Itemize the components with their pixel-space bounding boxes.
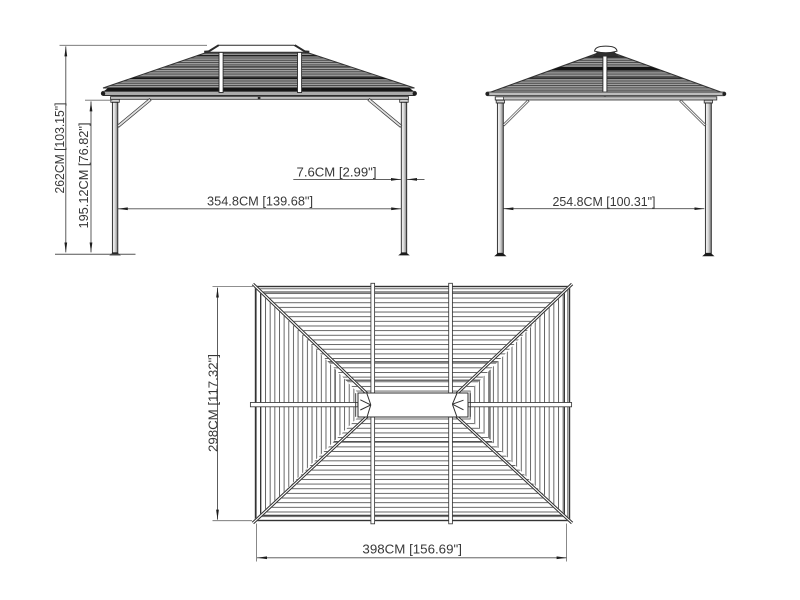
svg-text:195.12CM [76.82"]: 195.12CM [76.82"] bbox=[77, 122, 91, 228]
svg-text:354.8CM [139.68"]: 354.8CM [139.68"] bbox=[207, 194, 313, 208]
svg-text:398CM [156.69"]: 398CM [156.69"] bbox=[362, 543, 462, 557]
svg-text:254.8CM [100.31"]: 254.8CM [100.31"] bbox=[553, 195, 656, 209]
svg-text:262CM [103.15"]: 262CM [103.15"] bbox=[53, 103, 67, 194]
svg-text:7.6CM [2.99"]: 7.6CM [2.99"] bbox=[297, 165, 377, 179]
svg-text:298CM [117.32"]: 298CM [117.32"] bbox=[207, 354, 221, 452]
